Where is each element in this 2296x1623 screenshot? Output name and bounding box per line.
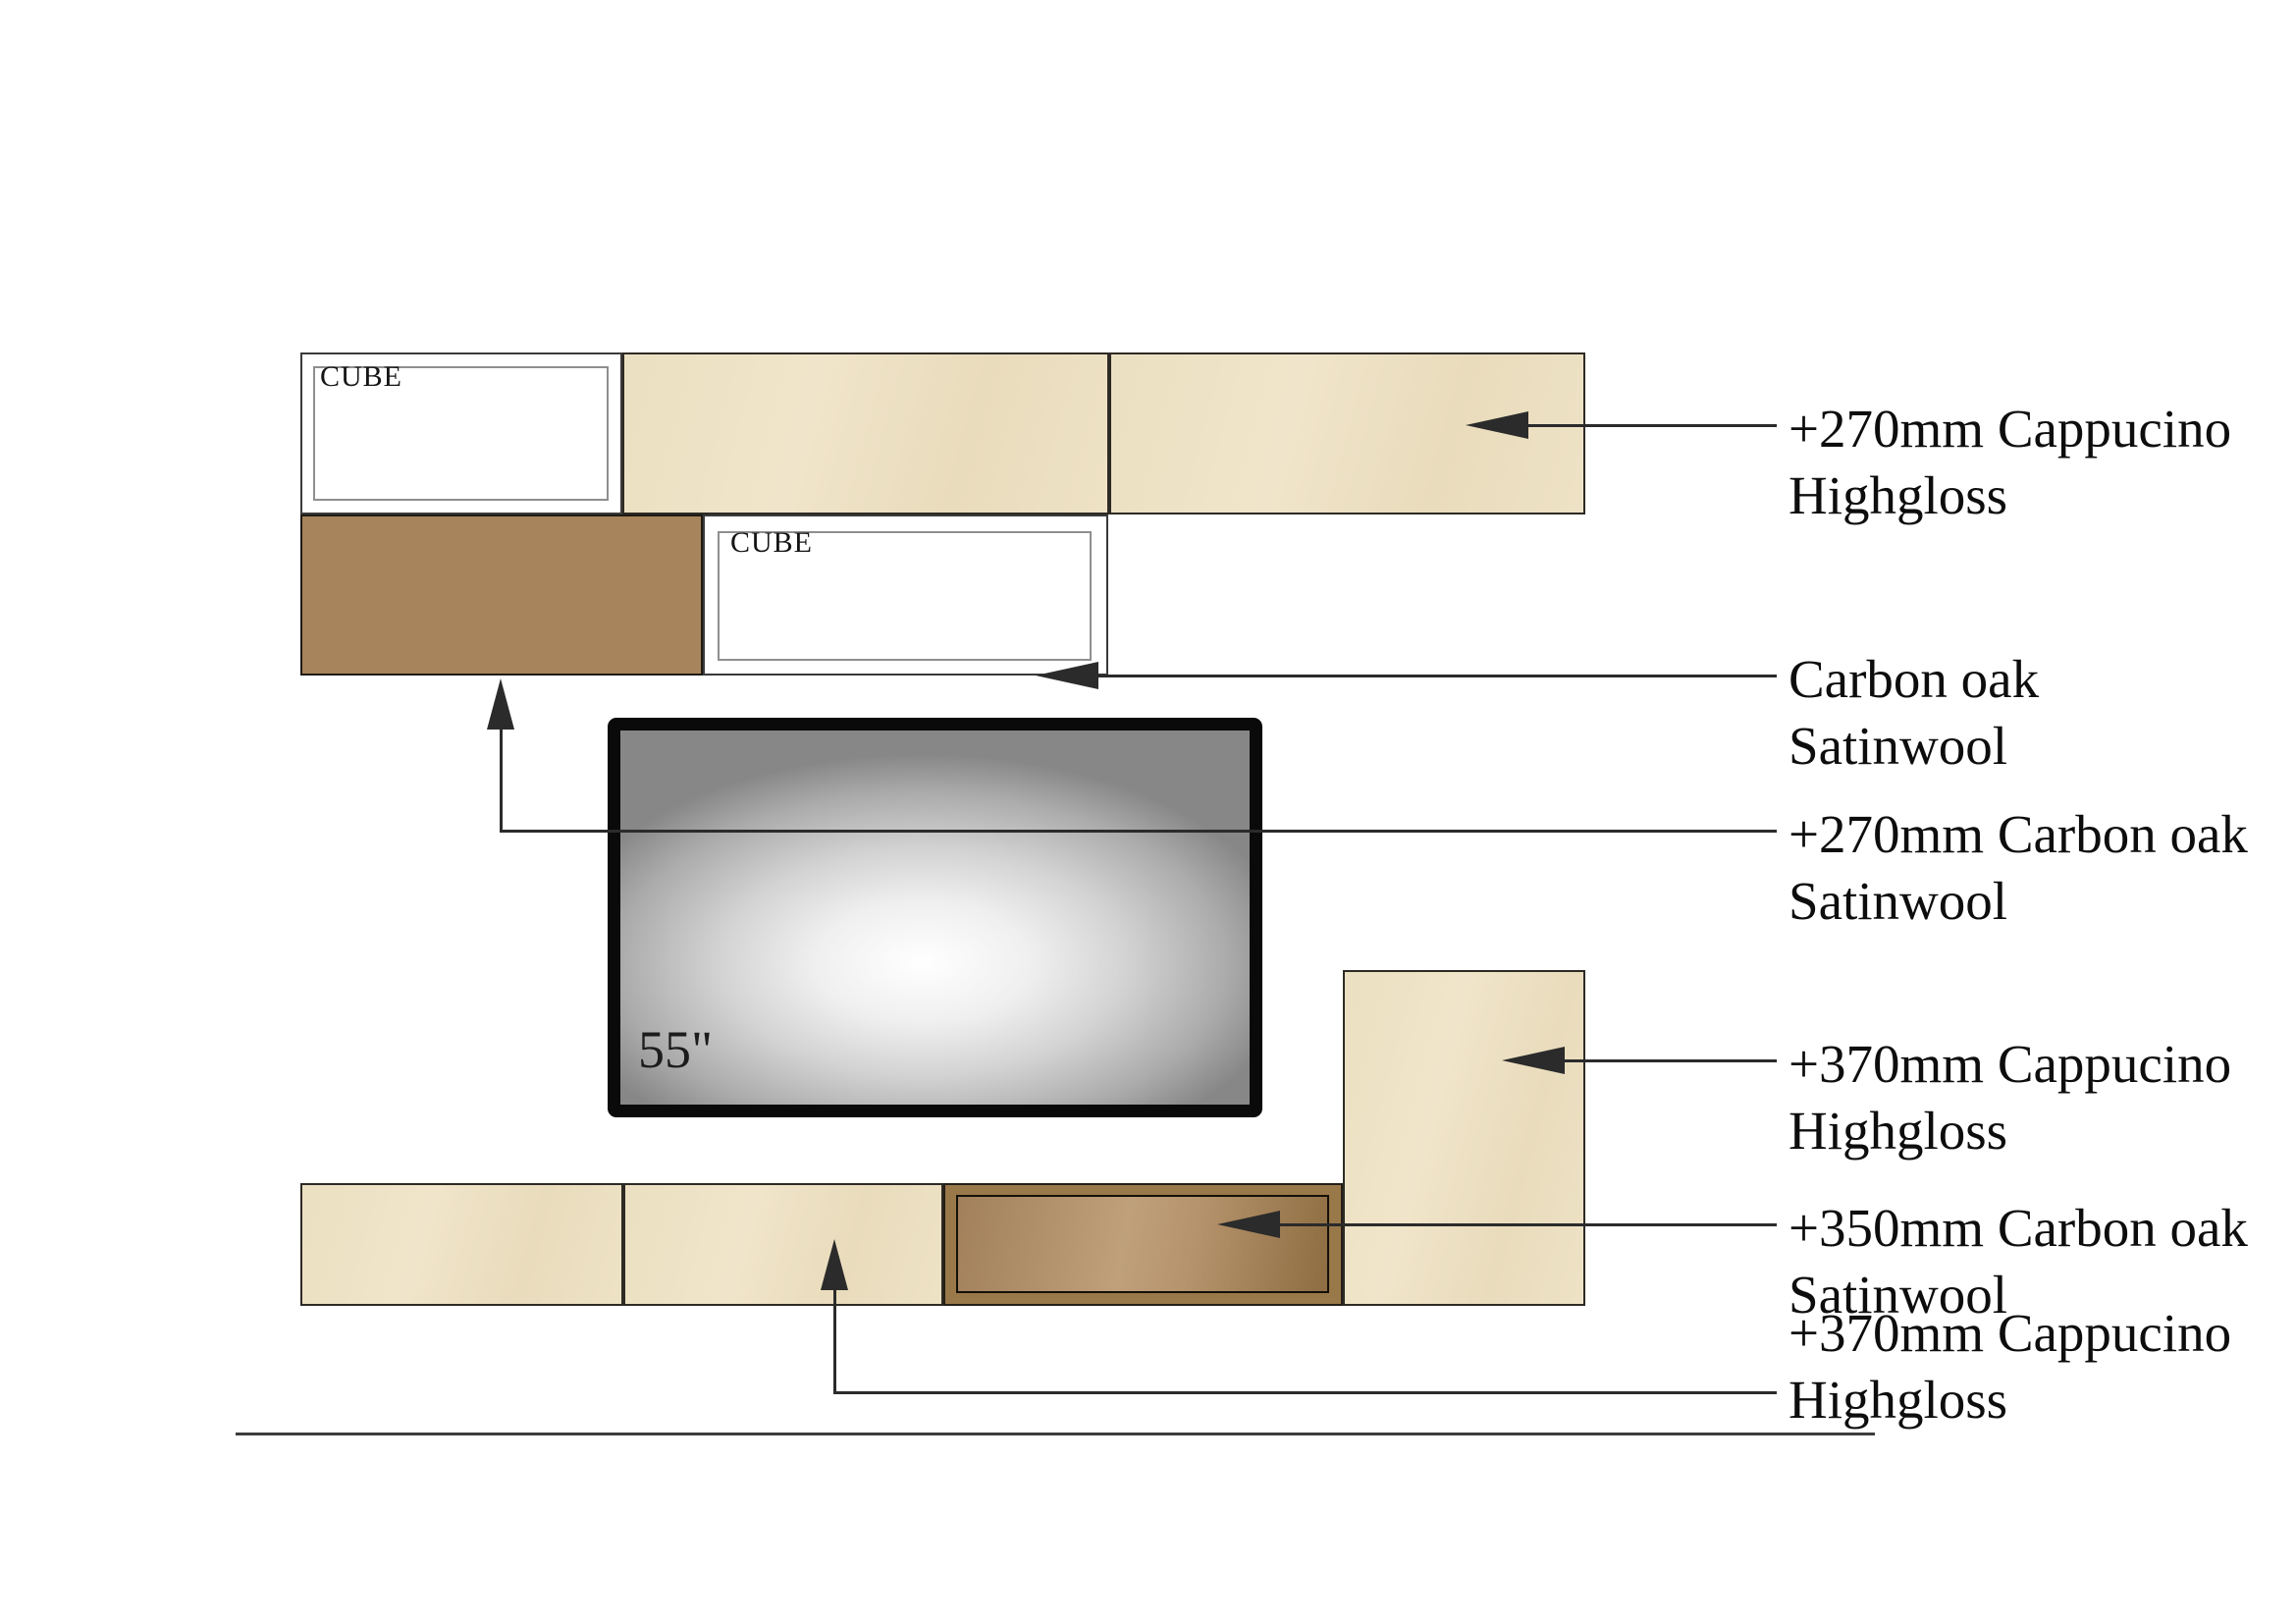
callout-6-arrowhead: [821, 1239, 848, 1290]
callout-6-line1: +370mm Cappucino: [1789, 1300, 2296, 1367]
tv-screen: [620, 730, 1250, 1105]
tv-size-label: 55": [638, 1019, 713, 1080]
callout-3-label: +270mm Carbon oak Satinwool: [1789, 801, 2296, 935]
bottom-row-cappucino-panel-mid: [623, 1183, 943, 1306]
callout-3-arrowhead: [487, 678, 514, 730]
callout-2-label: Carbon oak Satinwool: [1789, 646, 2296, 780]
callout-4-line2: Highgloss: [1789, 1098, 2296, 1164]
callout-1-line2: Highgloss: [1789, 462, 2296, 529]
callout-6-line2: Highgloss: [1789, 1367, 2296, 1434]
callout-5-leader-line: [1274, 1223, 1777, 1226]
callout-1-line1: +270mm Cappucino: [1789, 396, 2296, 462]
callout-2-arrowhead: [1036, 662, 1098, 689]
callout-3-line2: Satinwool: [1789, 868, 2296, 935]
floor-baseline: [236, 1433, 1875, 1435]
cube-cabinet-label: CUBE: [730, 526, 813, 560]
callout-5-line1: +350mm Carbon oak: [1789, 1195, 2296, 1262]
furniture-elevation-drawing: CUBE CUBE 55" +270mm Cappucino Highg: [0, 0, 2296, 1623]
bottom-row-cappucino-panel-left: [300, 1183, 623, 1306]
callout-3-line1: +270mm Carbon oak: [1789, 801, 2296, 868]
callout-6-leader-line: [833, 1391, 1777, 1394]
callout-6-leader-riser: [833, 1289, 836, 1393]
callout-3-leader-riser: [500, 729, 503, 831]
cube-cabinet-label: CUBE: [320, 360, 402, 394]
callout-4-leader-line: [1559, 1059, 1777, 1062]
second-row-carbon-oak-panel: [300, 514, 703, 676]
bottom-row-carbon-oak-drawer: [943, 1183, 1343, 1306]
callout-4-label: +370mm Cappucino Highgloss: [1789, 1031, 2296, 1164]
callout-4-line1: +370mm Cappucino: [1789, 1031, 2296, 1098]
top-row-cappucino-panel-left: [622, 352, 1109, 514]
callout-3-leader-line: [500, 830, 1777, 833]
callout-2-leader-line: [1092, 675, 1777, 677]
right-vertical-cappucino-panel: [1343, 970, 1585, 1306]
callout-4-arrowhead: [1502, 1047, 1565, 1074]
callout-5-arrowhead: [1217, 1211, 1280, 1238]
callout-1-label: +270mm Cappucino Highgloss: [1789, 396, 2296, 529]
callout-2-line1: Carbon oak: [1789, 646, 2296, 713]
callout-1-arrowhead: [1466, 411, 1528, 439]
top-row-cube-cabinet: CUBE: [300, 352, 622, 514]
callout-1-leader-line: [1522, 424, 1777, 427]
second-row-cube-cabinet: CUBE: [703, 514, 1108, 676]
callout-6-label: +370mm Cappucino Highgloss: [1789, 1300, 2296, 1434]
carbon-oak-drawer-front: [956, 1195, 1329, 1293]
callout-2-line2: Satinwool: [1789, 713, 2296, 780]
